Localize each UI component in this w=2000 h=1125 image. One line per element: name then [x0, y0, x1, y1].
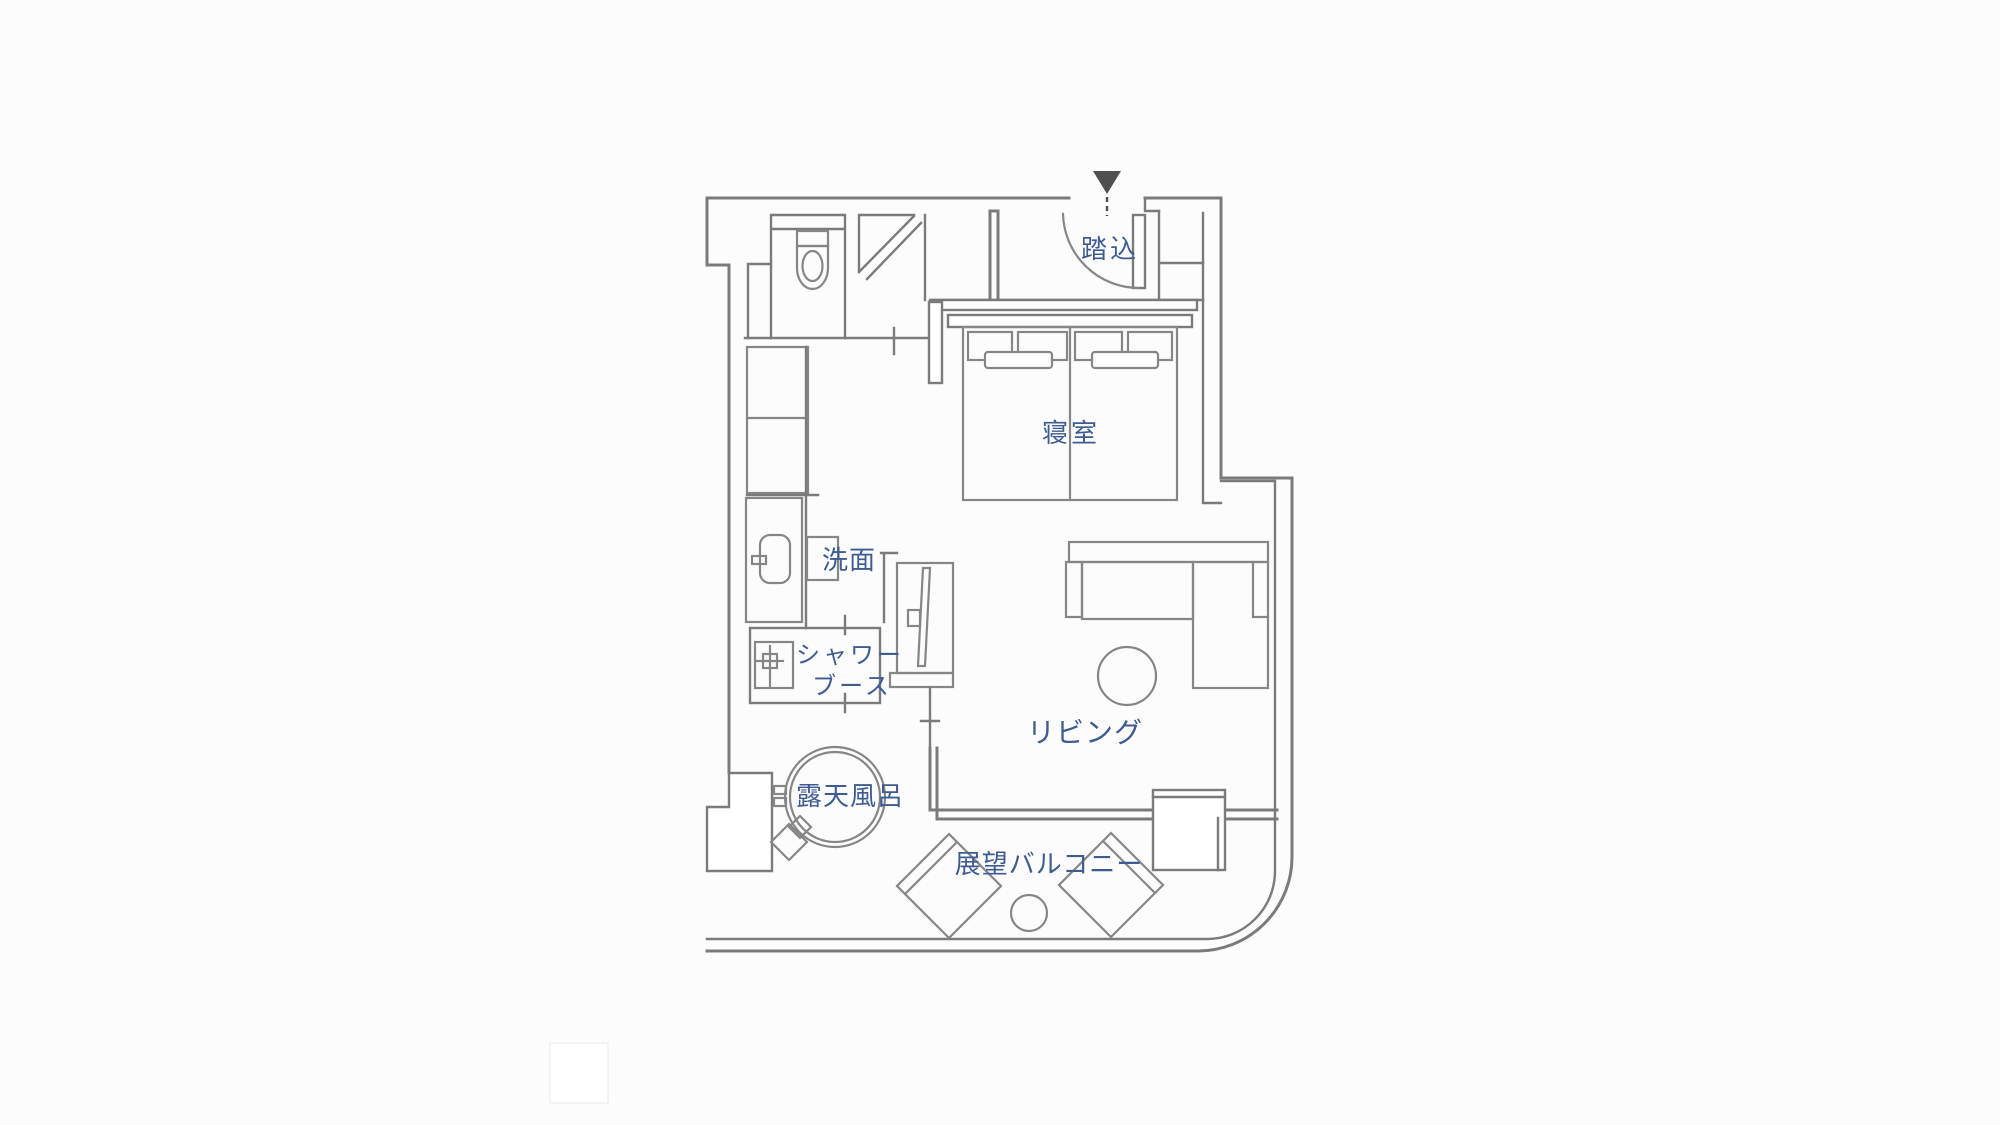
headboard-shelf	[948, 315, 1192, 327]
tv-board-shelf	[890, 673, 953, 687]
label-balcony: 展望バルコニー	[955, 850, 1143, 880]
angled-closet	[859, 215, 921, 279]
sofa-chaise-armrest	[1253, 562, 1268, 617]
wall-right-inner-top	[1203, 213, 1221, 503]
bedroom-west-pillar	[929, 302, 942, 383]
entrance-closet	[1159, 211, 1203, 301]
label-open-air-bath: 露天風呂	[796, 782, 904, 812]
label-entrance: 踏込	[1081, 235, 1139, 265]
label-shower-line2: ブース	[812, 672, 892, 700]
bedroom-area	[929, 300, 1197, 500]
label-bedroom: 寝室	[1042, 419, 1100, 449]
balcony-bench	[1153, 790, 1225, 870]
label-living: リビング	[1027, 716, 1143, 749]
living-west-wall	[930, 748, 937, 819]
balcony-side-table	[1011, 895, 1047, 931]
living-round-table	[1098, 647, 1156, 705]
bed2-pillow	[1092, 352, 1158, 368]
bath-step-stone	[771, 824, 807, 860]
balcony-chair-left-back	[905, 842, 957, 894]
vanity-counter	[746, 498, 802, 622]
toilet-tank-icon	[797, 231, 828, 246]
sink-basin-icon	[760, 535, 790, 583]
faint-background-square	[550, 1043, 608, 1103]
entry-arrow-icon	[1093, 171, 1121, 194]
living-area	[921, 542, 1277, 819]
toilet-room-walls	[771, 215, 845, 338]
shower-unit	[755, 642, 793, 688]
floor-plan-drawing: 踏込 寝室 洗面 シャワー ブース 露天風呂 リビング 展望バルコニー	[0, 0, 2000, 1125]
toilet-side-closet	[748, 264, 771, 338]
sofa-armrest-left	[1066, 562, 1082, 617]
toilet-area	[745, 215, 933, 354]
wall-door-jamb	[1145, 198, 1159, 211]
washroom-area	[746, 347, 838, 628]
bed1-pillow	[985, 352, 1052, 368]
label-shower-line1: シャワー	[796, 641, 904, 669]
entrance-left-wall	[990, 211, 998, 298]
sofa-back	[1069, 542, 1268, 562]
headboard-wall	[932, 300, 1197, 310]
entrance-area	[930, 171, 1203, 301]
storage-cabinet	[747, 347, 808, 493]
wall-left	[707, 198, 729, 773]
toilet-seat-icon	[803, 251, 823, 281]
shower-mixer-icon	[757, 646, 783, 686]
floor-plan-canvas: 踏込 寝室 洗面 シャワー ブース 露天風呂 リビング 展望バルコニー	[0, 0, 2000, 1125]
sofa-seat	[1082, 562, 1193, 619]
wall-block-bottom-left	[707, 773, 772, 871]
tv-alcove-wall	[881, 553, 897, 622]
sofa-chaise	[1193, 562, 1268, 688]
label-washroom: 洗面	[822, 546, 876, 576]
tv-stand-icon	[908, 610, 920, 626]
